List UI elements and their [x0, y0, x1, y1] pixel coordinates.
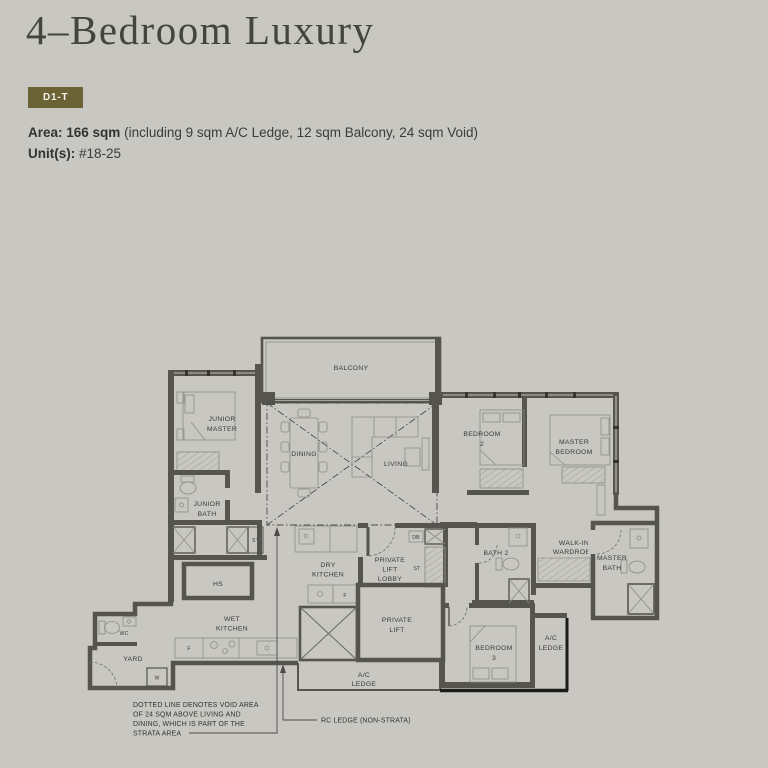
room-label-balcony: BALCONY: [334, 365, 369, 372]
room-label-bedroom2: BEDROOM2: [463, 431, 500, 448]
area-line: Area: 166 sqm (including 9 sqm A/C Ledge…: [28, 122, 478, 143]
wet-kitchen-yard: WC YARD W F WETKITCHEN: [90, 600, 298, 688]
room-label-yard: YARD: [123, 656, 143, 663]
junior-master-wing: JUNIORMASTER JUNIORBATH ST HS: [168, 364, 267, 602]
units-label: Unit(s):: [28, 146, 75, 161]
room-label-ac-ledge-bottom: A/CLEDGE: [352, 672, 377, 688]
unit-meta: Area: 166 sqm (including 9 sqm A/C Ledge…: [28, 122, 478, 164]
area-note: (including 9 sqm A/C Ledge, 12 sqm Balco…: [124, 125, 478, 140]
room-label-wc: WC: [119, 631, 128, 637]
room-label-master-bedroom: MASTERBEDROOM: [555, 439, 592, 456]
room-label-private-lift: PRIVATELIFT: [382, 617, 412, 634]
units-line: Unit(s): #18-25: [28, 143, 478, 164]
dining-living: DINING LIVING: [281, 409, 429, 497]
room-label-bedroom3: BEDROOM3: [475, 645, 512, 662]
unit-type-badge[interactable]: D1-T: [28, 87, 83, 108]
room-label-living: LIVING: [384, 461, 408, 468]
room-label-junior-bath: JUNIORBATH: [193, 501, 220, 518]
lobby-dry-kitchen: DB ST PRIVATELIFTLOBBY DRYKITCHEN F: [295, 522, 477, 603]
label-fridge-dry: F: [343, 593, 346, 599]
floor-plan: BALCONY JUNIORMASTER JUNIORBATH: [85, 330, 675, 745]
room-label-dry-kitchen: DRYKITCHEN: [312, 562, 344, 579]
room-label-st-lobby: ST: [413, 566, 421, 572]
bedrooms-wing: BEDROOM2 MASTERBEDROOM: [432, 338, 657, 523]
page-title: 4–Bedroom Luxury: [26, 6, 375, 54]
room-label-bath2: BATH 2: [483, 550, 508, 557]
void-note: DOTTED LINE DENOTES VOID AREA OF 24 SQM …: [133, 702, 260, 738]
room-label-hs: HS: [213, 581, 223, 588]
floor-plan-page: { "header": { "title": "4–Bedroom Luxury…: [0, 0, 768, 768]
room-label-master-bath: MASTERBATH: [597, 555, 627, 572]
units-value: #18-25: [79, 146, 121, 161]
label-fridge-wet: F: [187, 647, 190, 653]
floor-plan-svg: BALCONY JUNIORMASTER JUNIORBATH: [85, 330, 675, 745]
room-label-db: DB: [412, 535, 420, 541]
balcony: BALCONY: [262, 338, 442, 405]
room-label-junior-master: JUNIORMASTER: [207, 416, 237, 433]
room-label-private-lift-lobby: PRIVATELIFTLOBBY: [375, 557, 405, 583]
room-label-dining: DINING: [291, 451, 317, 458]
room-label-ac-ledge-right: A/CLEDGE: [539, 635, 564, 652]
label-washer: W: [154, 676, 159, 682]
area-value: Area: 166 sqm: [28, 125, 120, 140]
bedroom3-wing: BEDROOM3 A/CLEDGE: [440, 603, 568, 691]
ac-ledge-bottom: A/CLEDGE: [298, 660, 440, 690]
rc-ledge-note: RC LEDGE (NON-STRATA): [321, 718, 411, 725]
room-label-wet-kitchen: WETKITCHEN: [216, 616, 248, 633]
